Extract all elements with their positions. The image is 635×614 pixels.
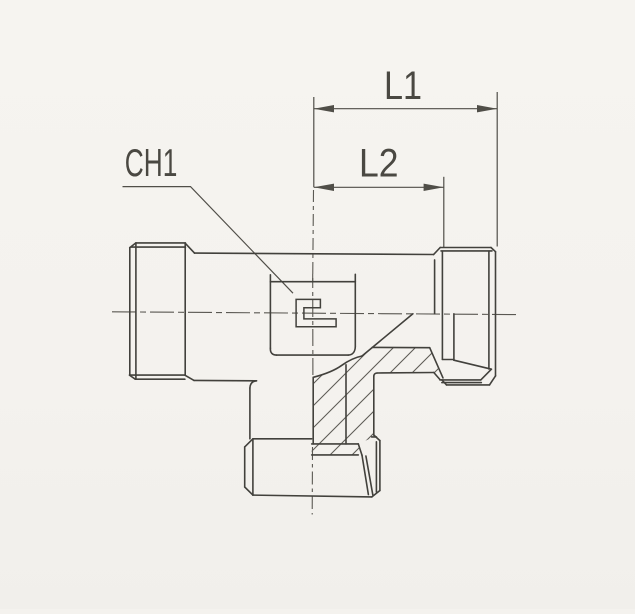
svg-text:L2: L2 bbox=[359, 141, 399, 185]
svg-text:CH1: CH1 bbox=[125, 142, 178, 185]
svg-text:L1: L1 bbox=[384, 64, 422, 108]
